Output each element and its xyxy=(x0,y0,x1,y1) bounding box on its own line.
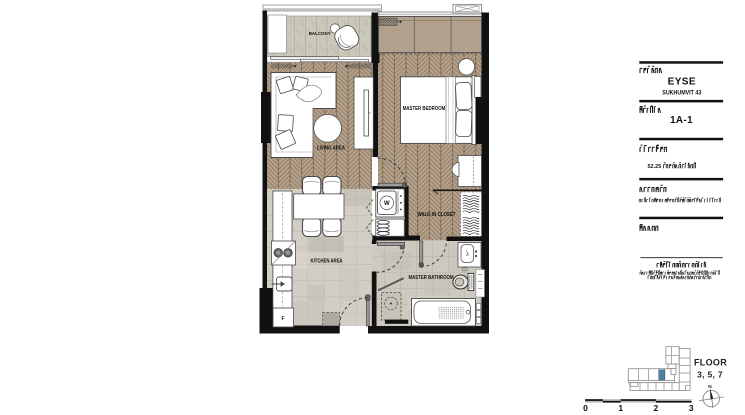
svg-text:N: N xyxy=(708,384,712,390)
svg-text:LIVING AREA: LIVING AREA xyxy=(317,146,345,152)
svg-text:KITCHEN AREA: KITCHEN AREA xyxy=(311,259,343,265)
svg-text:SUKHUMVIT 43: SUKHUMVIT 43 xyxy=(662,91,702,97)
svg-text:MASTER BATHROOM: MASTER BATHROOM xyxy=(409,275,454,281)
svg-text:W: W xyxy=(384,201,390,207)
svg-text:52.25: 52.25 xyxy=(648,164,662,170)
svg-text:EYSE: EYSE xyxy=(668,76,696,87)
svg-text:WALK-IN CLOSET: WALK-IN CLOSET xyxy=(418,212,456,218)
svg-text:3: 3 xyxy=(689,403,694,413)
svg-text:2: 2 xyxy=(654,403,659,413)
svg-text:MASTER BEDROOM: MASTER BEDROOM xyxy=(403,106,446,112)
svg-text:1A-1: 1A-1 xyxy=(670,115,693,126)
svg-text:3, 5, 7: 3, 5, 7 xyxy=(697,370,723,380)
svg-text:1: 1 xyxy=(618,403,623,413)
svg-text:FLOOR: FLOOR xyxy=(694,358,727,368)
svg-text:BALCONY: BALCONY xyxy=(309,31,331,36)
svg-text:F: F xyxy=(281,316,284,322)
svg-text:0: 0 xyxy=(583,403,588,413)
